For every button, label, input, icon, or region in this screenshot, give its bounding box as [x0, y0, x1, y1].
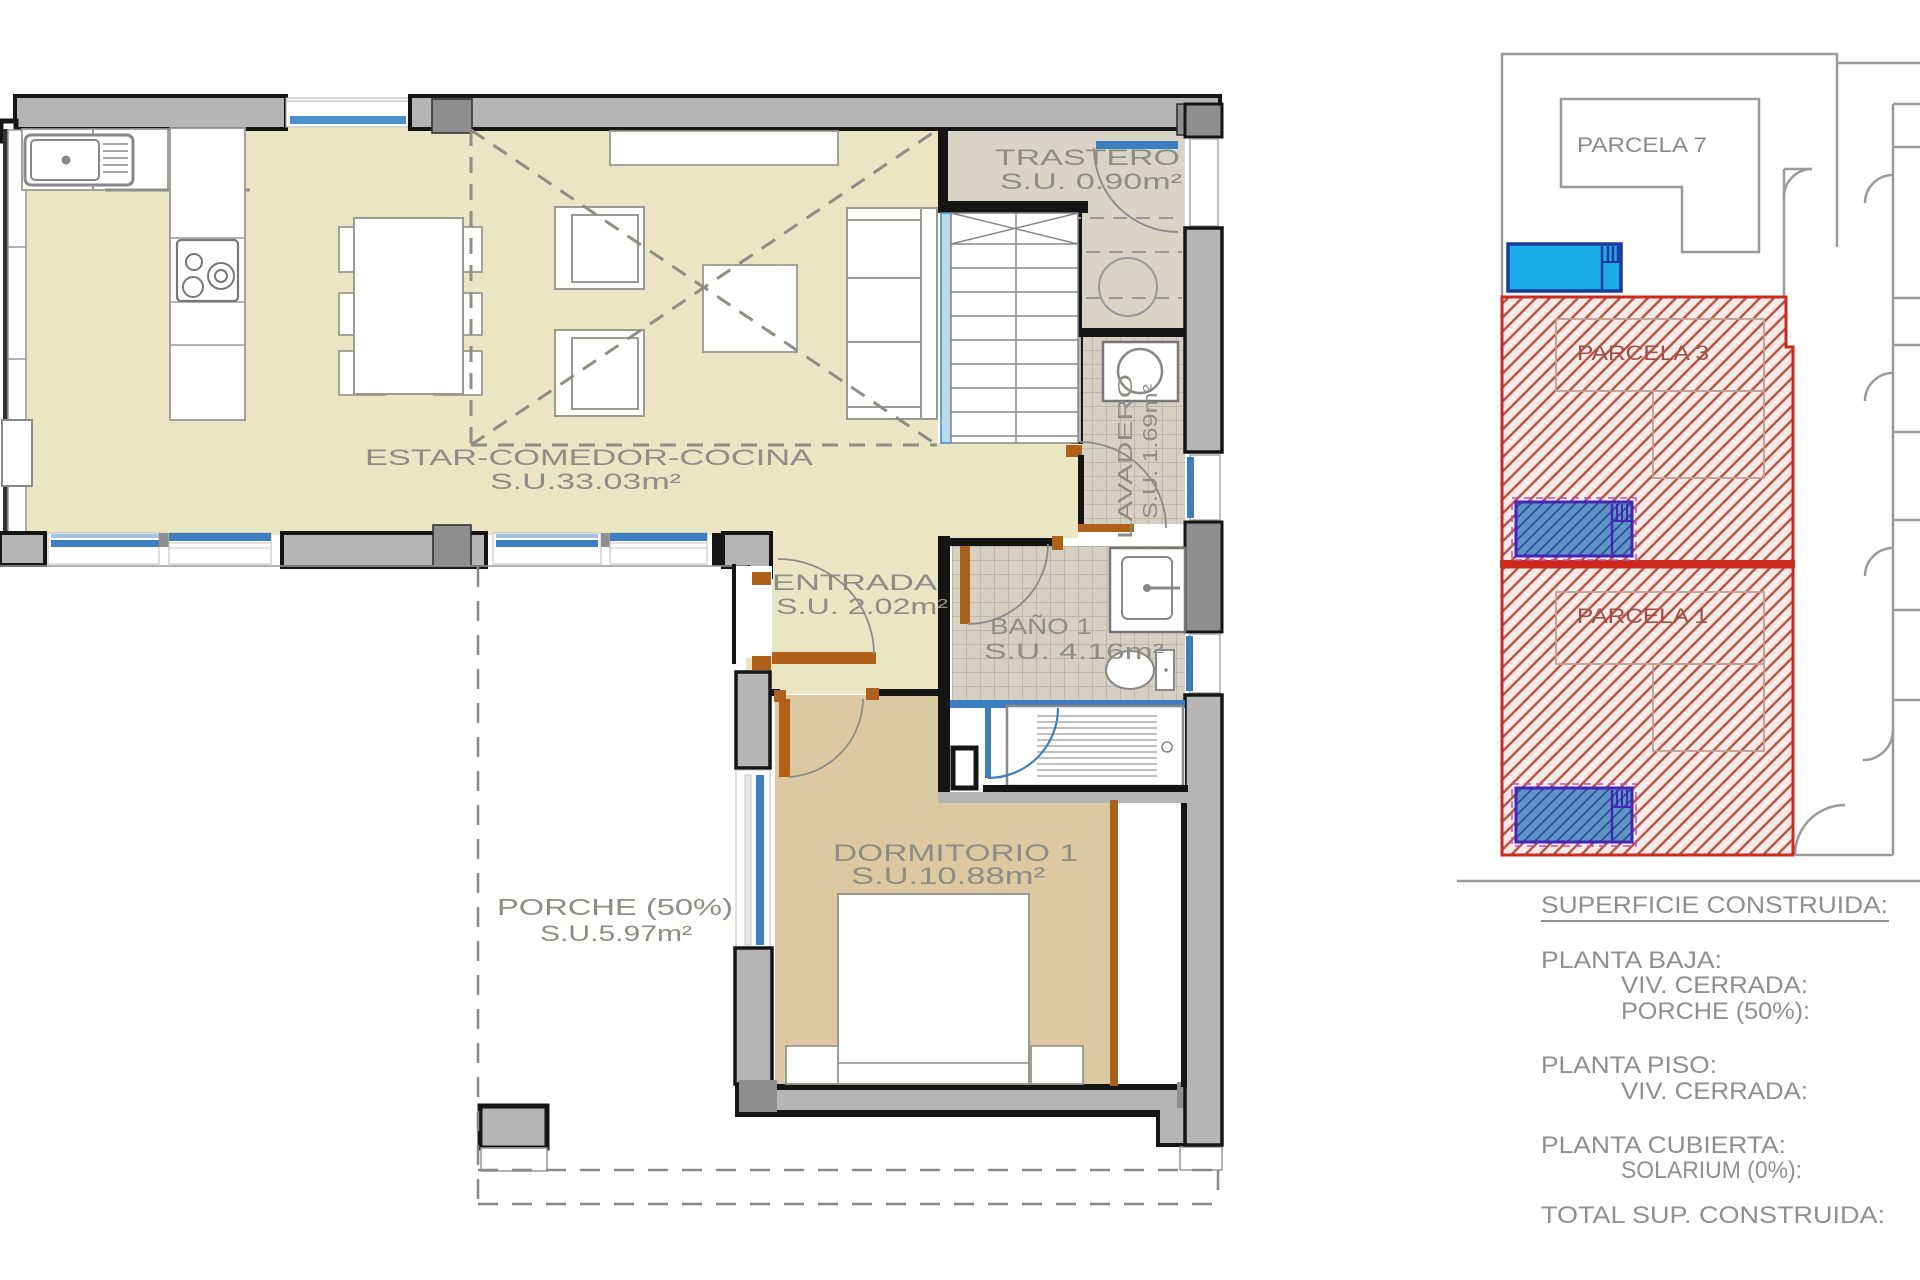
svg-text:PLANTA PISO:: PLANTA PISO:	[1541, 1052, 1717, 1079]
svg-text:S.U.33.03m²: S.U.33.03m²	[490, 469, 681, 494]
svg-text:PLANTA BAJA:: PLANTA BAJA:	[1541, 947, 1722, 974]
svg-text:SOLARIUM (0%):: SOLARIUM (0%):	[1621, 1157, 1802, 1184]
svg-text:S.U. 0.90m²: S.U. 0.90m²	[1000, 169, 1182, 194]
svg-text:TOTAL SUP. CONSTRUIDA:: TOTAL SUP. CONSTRUIDA:	[1541, 1202, 1885, 1229]
svg-text:PARCELA 1: PARCELA 1	[1577, 605, 1708, 628]
svg-text:LAVADERO: LAVADERO	[1115, 374, 1137, 539]
svg-text:VIV. CERRADA:: VIV. CERRADA:	[1621, 1078, 1808, 1105]
svg-text:S.U.5.97m²: S.U.5.97m²	[540, 921, 692, 946]
svg-text:S.U.10.88m²: S.U.10.88m²	[851, 863, 1045, 890]
svg-text:S.U. 4.16m²: S.U. 4.16m²	[984, 639, 1164, 664]
svg-text:TRASTERO: TRASTERO	[995, 145, 1180, 170]
svg-text:S.U. 2.02m²: S.U. 2.02m²	[776, 594, 948, 619]
svg-text:PORCHE (50%): PORCHE (50%)	[497, 894, 733, 920]
svg-text:S.U. 1.69m²: S.U. 1.69m²	[1140, 384, 1162, 519]
svg-text:PARCELA 3: PARCELA 3	[1577, 342, 1709, 365]
svg-text:ESTAR-COMEDOR-COCINA: ESTAR-COMEDOR-COCINA	[365, 445, 813, 470]
svg-text:BAÑO 1: BAÑO 1	[990, 614, 1092, 639]
svg-text:PORCHE (50%):: PORCHE (50%):	[1621, 998, 1810, 1025]
svg-text:SUPERFICIE CONSTRUIDA:: SUPERFICIE CONSTRUIDA:	[1541, 892, 1888, 919]
svg-text:ENTRADA: ENTRADA	[772, 570, 938, 595]
svg-text:PARCELA 7: PARCELA 7	[1577, 134, 1707, 157]
svg-text:PLANTA CUBIERTA:: PLANTA CUBIERTA:	[1541, 1132, 1786, 1159]
svg-text:VIV. CERRADA:: VIV. CERRADA:	[1621, 972, 1808, 999]
